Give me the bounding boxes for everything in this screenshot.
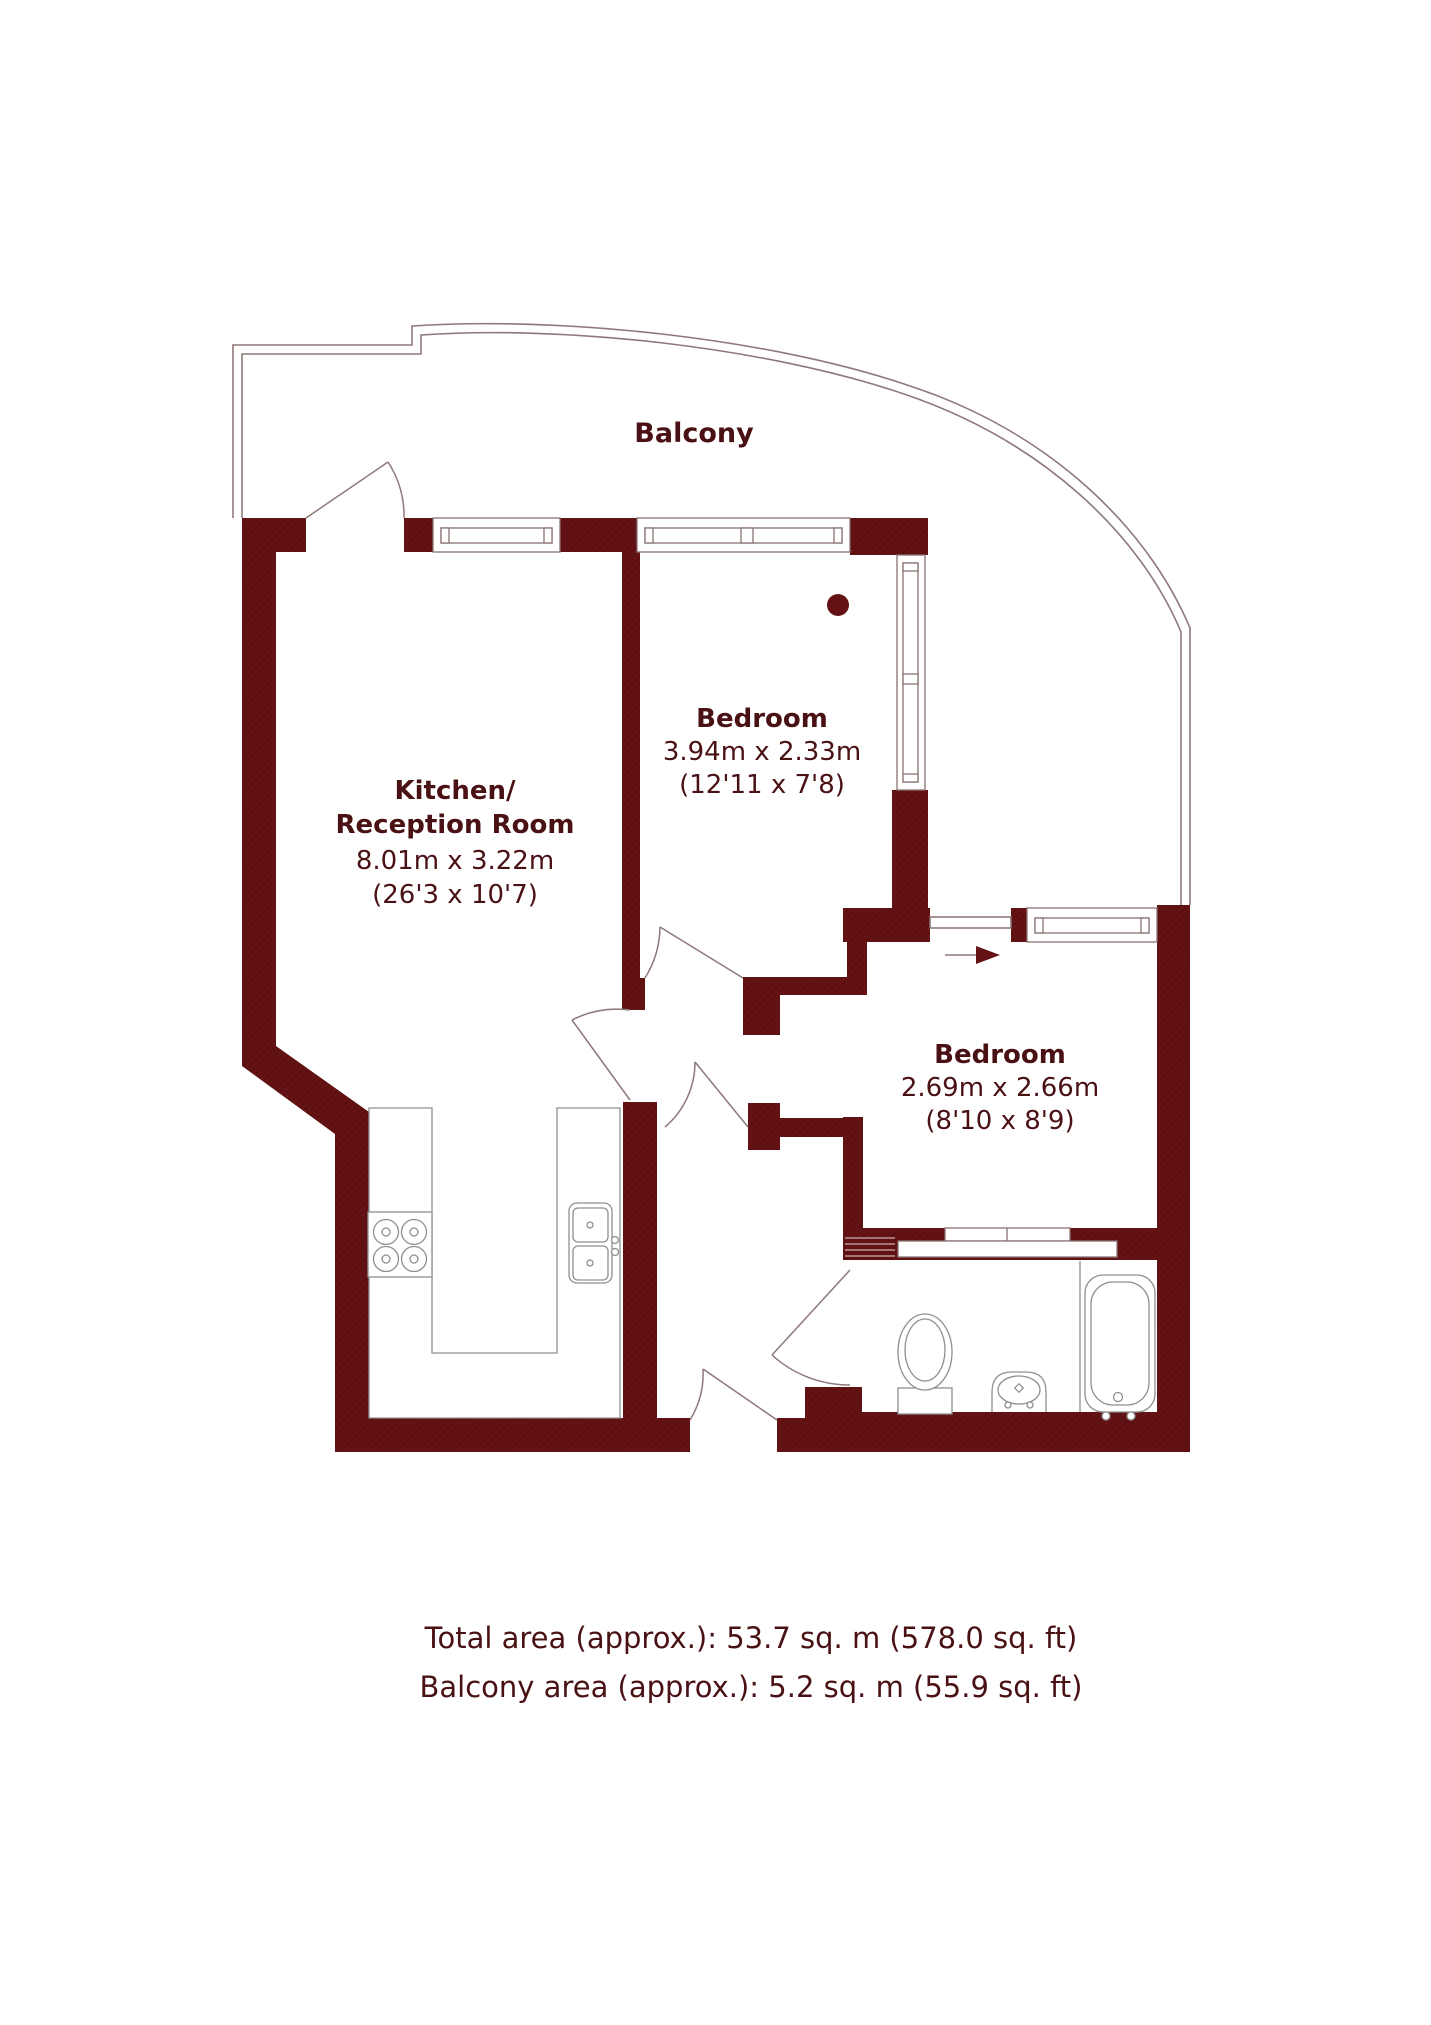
kitchen-dimensions-m: 8.01m x 3.22m xyxy=(356,846,554,876)
wall-bedroom1-divider xyxy=(622,552,640,1010)
wall-lobby-block xyxy=(805,1387,862,1418)
bedroom2-name: Bedroom xyxy=(934,1040,1066,1070)
wall-bottom-mid xyxy=(777,1418,862,1452)
bedroom2-door-arrow xyxy=(945,946,1000,964)
wall-right xyxy=(1157,905,1190,1452)
entrance-door-arc xyxy=(690,1369,777,1420)
windows xyxy=(433,518,1157,1257)
wall-lobby xyxy=(750,1118,863,1137)
balcony-door-arc xyxy=(306,462,404,518)
kitchen-door-arc xyxy=(572,1009,630,1100)
column-dot xyxy=(827,594,849,616)
wall-left-lower xyxy=(335,1112,369,1452)
bathtub-icon xyxy=(1085,1275,1155,1420)
wall-left xyxy=(242,518,276,1048)
bathroom-door-arc xyxy=(772,1270,850,1385)
bedroom1-door-arc xyxy=(645,927,743,978)
bedroom1-dimensions-ft: (12'11 x 7'8) xyxy=(679,770,845,800)
wall-top-center-pillar xyxy=(560,518,637,552)
bedroom2-side-window xyxy=(1027,908,1157,942)
kitchen-fixtures xyxy=(368,1108,620,1418)
kitchen-name-line1: Kitchen/ xyxy=(394,776,516,806)
floorplan-page: Balcony Kitchen/ Reception Room 8.01m x … xyxy=(0,0,1431,2025)
wall-bedroom1-bottom-stub xyxy=(622,978,645,1010)
bedroom1-dimensions-m: 3.94m x 2.33m xyxy=(663,737,861,767)
kitchen-window xyxy=(433,518,560,552)
wall-top-right-pillar xyxy=(850,518,928,555)
floor-plan-svg: Balcony Kitchen/ Reception Room 8.01m x … xyxy=(0,0,1431,2025)
wall-top-a xyxy=(404,518,433,552)
basin-icon xyxy=(992,1372,1046,1412)
wall-bathroom-bottom xyxy=(862,1412,1190,1452)
bedroom2-dimensions-m: 2.69m x 2.66m xyxy=(901,1073,1099,1103)
balcony-area-text: Balcony area (approx.): 5.2 sq. m (55.9 … xyxy=(420,1670,1083,1704)
balcony-label: Balcony xyxy=(634,418,754,449)
wall-corridor-block xyxy=(843,908,930,942)
bathroom-fixtures xyxy=(898,1261,1155,1420)
bedroom1-name: Bedroom xyxy=(696,704,828,734)
kitchen-name-line2: Reception Room xyxy=(336,810,575,840)
bedroom1-side-window xyxy=(897,555,925,790)
hob-icon xyxy=(368,1212,432,1277)
kitchen-dimensions-ft: (26'3 x 10'7) xyxy=(372,880,538,910)
wall-hall-divider xyxy=(623,1102,657,1452)
total-area-text: Total area (approx.): 53.7 sq. m (578.0 … xyxy=(424,1621,1078,1655)
toilet-icon xyxy=(898,1314,952,1414)
bedroom2-dimensions-ft: (8'10 x 8'9) xyxy=(925,1106,1074,1136)
bedroom2-sliding-door xyxy=(930,917,1011,928)
lobby-door-arc xyxy=(665,1062,748,1127)
wall-bedroom1-right-lower xyxy=(892,790,928,908)
sink-icon xyxy=(569,1203,619,1283)
bedroom1-top-window xyxy=(637,518,850,552)
